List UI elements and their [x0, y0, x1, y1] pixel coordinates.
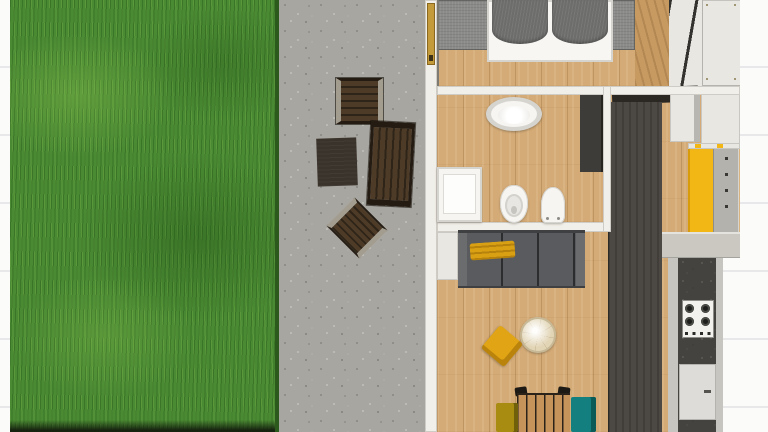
wardrobe-panel	[702, 0, 740, 86]
kitchen-grey-drawer-unit	[713, 149, 739, 232]
panel-screw	[706, 4, 708, 6]
wall-bathroom-kitchen	[603, 86, 611, 232]
bed-duvet-left	[492, 0, 548, 44]
toilet-drain	[511, 206, 517, 214]
dining-table	[517, 393, 570, 432]
shelf-yellow-handle	[695, 144, 701, 148]
panel-screw	[734, 4, 736, 6]
wall-bedroom-bathroom	[437, 86, 740, 95]
door-handle-icon	[704, 390, 711, 393]
shelf-yellow-handle	[717, 144, 723, 148]
dining-chair-olive	[496, 403, 518, 432]
counter-white-door	[679, 364, 716, 420]
bidet-hinge	[557, 217, 560, 220]
patio-lounger	[367, 121, 415, 207]
burner	[701, 304, 710, 313]
wardrobe-wood-side	[635, 0, 671, 86]
floorplan-canvas	[0, 0, 768, 432]
burner	[685, 304, 694, 313]
living-sideboard	[437, 232, 458, 280]
kitchen-box-cabinet	[670, 92, 700, 142]
burner	[701, 317, 710, 326]
door-frame-shadow	[437, 0, 439, 86]
sofa-yellow-throw	[469, 240, 515, 260]
drawer-handles	[725, 157, 728, 221]
garden-grass	[10, 0, 275, 432]
panel-screw	[734, 78, 736, 80]
counter-edge-right	[716, 258, 723, 432]
kitchen-dark-wall-unit	[608, 102, 662, 432]
round-coffee-table	[520, 317, 556, 353]
bed-duvet-right	[552, 0, 608, 44]
bathroom-dark-cabinet	[580, 95, 603, 172]
burner	[685, 317, 694, 326]
patio-door-handle	[429, 55, 433, 61]
toilet	[500, 185, 528, 223]
patio-outdoor-mat	[316, 137, 358, 186]
washbasin	[486, 97, 542, 131]
shower-tray-inner	[443, 174, 476, 214]
patio-folding-chair	[336, 78, 383, 124]
hob-knobs	[685, 332, 711, 335]
dining-chair-teal	[571, 397, 596, 432]
wardrobe-drawer-fronts	[669, 0, 702, 86]
shower-tray	[437, 167, 482, 222]
bidet	[541, 187, 565, 223]
panel-screw	[706, 78, 708, 80]
bidet-hinge	[546, 217, 549, 220]
kitchen-counter-ledge	[662, 232, 740, 258]
kitchen-yellow-cabinet	[688, 149, 713, 232]
gas-hob	[682, 300, 714, 338]
washbasin-bowl	[498, 106, 530, 124]
counter-edge-left	[668, 258, 678, 432]
